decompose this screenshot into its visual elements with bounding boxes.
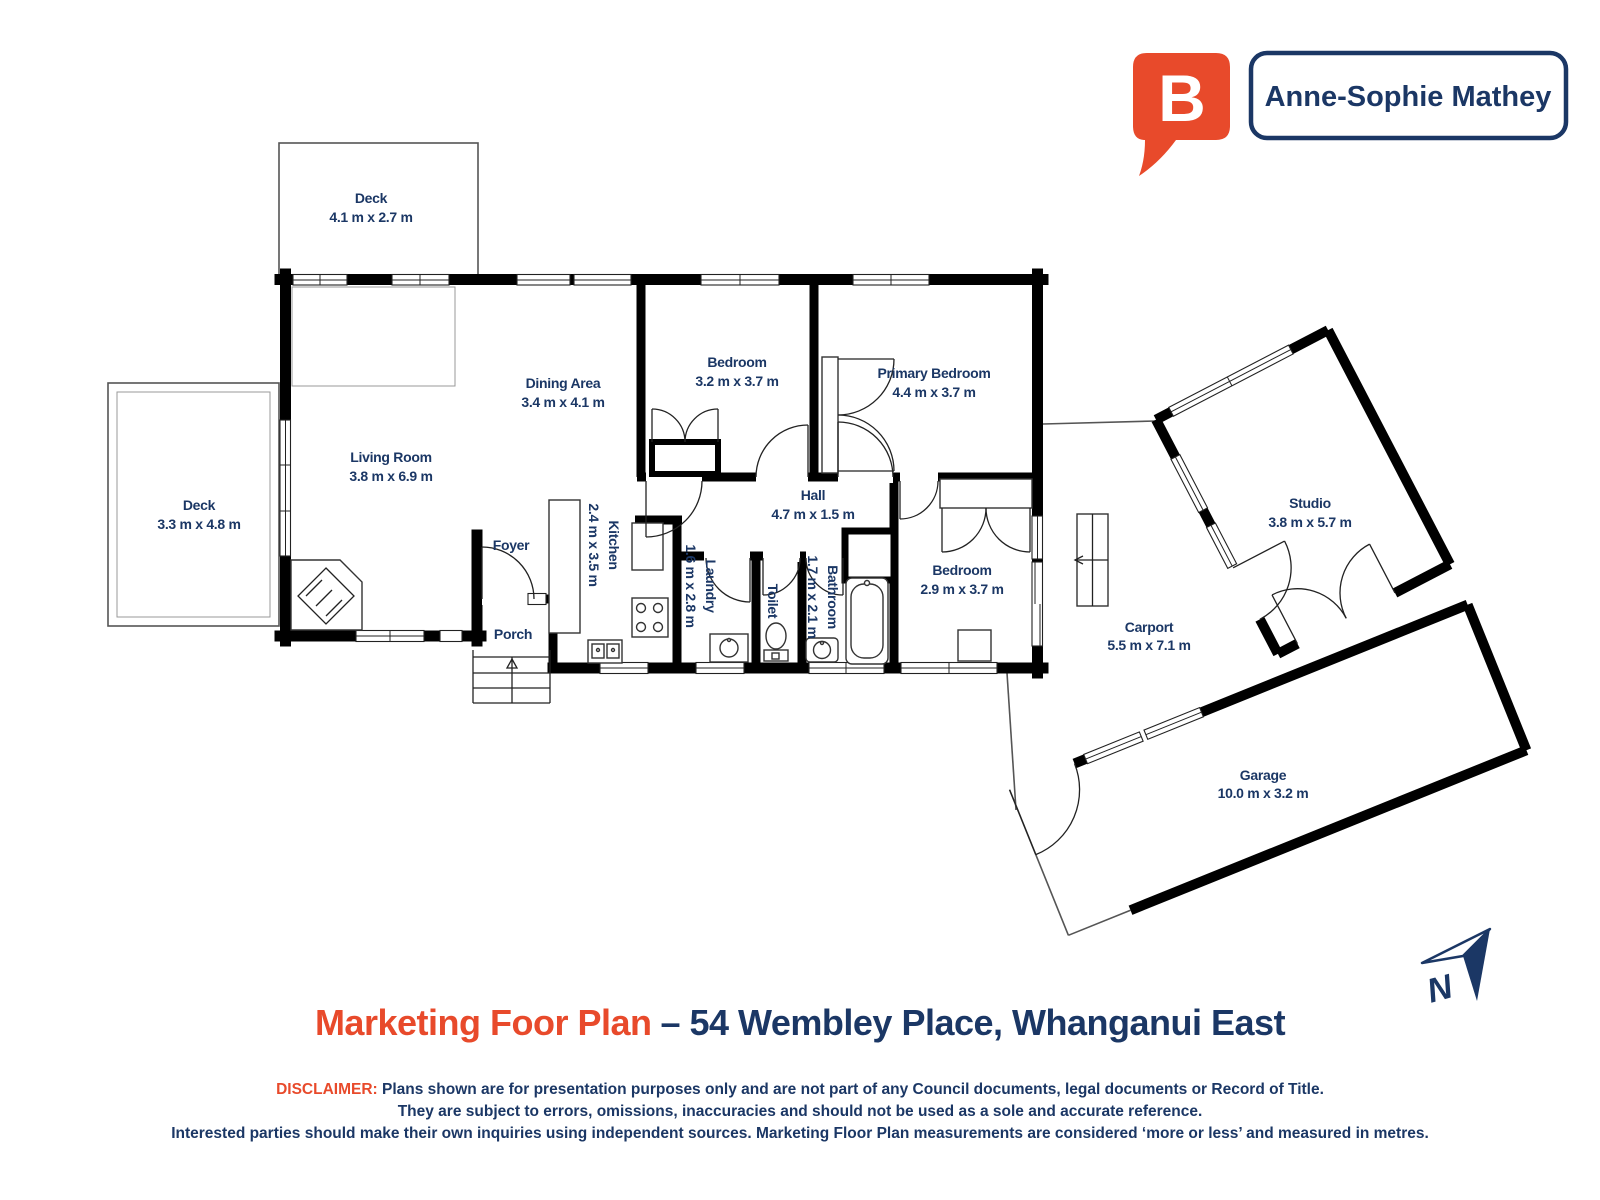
bathroom-sink-icon [806,638,838,662]
primary-closet [822,357,838,473]
disclaimer: DISCLAIMER: Plans shown are for presenta… [0,1079,1600,1145]
svg-text:1.6 m x 2.8 m: 1.6 m x 2.8 m [683,544,699,627]
studio-structure [1149,326,1450,656]
svg-text:10.0 m x 3.2 m: 10.0 m x 3.2 m [1218,785,1309,801]
svg-text:Laundry: Laundry [703,559,719,613]
fireplace-icon [291,560,362,630]
agent-name: Anne-Sophie Mathey [1265,81,1552,113]
kitchen-bench [549,500,580,633]
svg-text:5.5 m x 7.1 m: 5.5 m x 7.1 m [1107,637,1190,653]
plan-title-address: – 54 Wembley Place, Whanganui East [660,1002,1285,1043]
svg-text:3.2 m x 3.7 m: 3.2 m x 3.7 m [695,373,778,389]
label-bedroom-1: Bedroom [707,354,766,370]
svg-text:Toilet: Toilet [765,584,781,619]
label-kitchen: Kitchen 2.4 m x 3.5 m [586,503,622,586]
disclaimer-line-2: They are subject to errors, omissions, i… [0,1101,1600,1123]
svg-text:3.8 m x 6.9 m: 3.8 m x 6.9 m [349,468,432,484]
label-bedroom-2: Bedroom [932,562,991,578]
logo-letter: B [1158,61,1206,135]
porch-steps [473,650,550,703]
label-primary-bedroom: Primary Bedroom [878,365,991,381]
svg-text:Bathroom: Bathroom [825,565,841,629]
stove-icon [632,598,668,637]
label-deck-left: Deck [183,497,216,513]
svg-text:3.8 m x 5.7 m: 3.8 m x 5.7 m [1268,514,1351,530]
label-hall: Hall [801,487,825,503]
svg-text:3.4 m x 4.1 m: 3.4 m x 4.1 m [521,394,604,410]
plan-title-highlight: Marketing Foor Plan [315,1002,652,1043]
svg-text:1.7 m x 2.1 m: 1.7 m x 2.1 m [805,555,821,638]
svg-text:4.1 m x 2.7 m: 4.1 m x 2.7 m [329,209,412,225]
linen-cupboard [845,531,894,580]
label-carport: Carport [1125,619,1174,635]
wardrobe-icon [940,479,1032,552]
svg-text:4.7 m x 1.5 m: 4.7 m x 1.5 m [771,506,854,522]
kitchen-sink-icon [588,640,622,663]
label-bathroom: Bathroom 1.7 m x 2.1 m [805,555,841,638]
label-studio: Studio [1289,495,1331,511]
label-dining-area: Dining Area [526,375,601,391]
toilet-icon [764,623,788,661]
disclaimer-line-3: Interested parties should make their own… [0,1123,1600,1145]
svg-text:Kitchen: Kitchen [606,520,622,569]
bathtub-icon [846,578,888,664]
floor-plan-page: Deck 4.1 m x 2.7 m Deck 3.3 m x 4.8 m Li… [0,0,1600,1200]
label-porch: Porch [494,626,532,642]
svg-text:4.4 m x 3.7 m: 4.4 m x 3.7 m [892,384,975,400]
label-foyer: Foyer [493,537,530,553]
label-living-room: Living Room [350,449,431,465]
label-deck-top: Deck [355,190,388,206]
svg-text:3.3 m x 4.8 m: 3.3 m x 4.8 m [157,516,240,532]
carport-storage [1075,514,1108,606]
north-arrow-icon: N [1422,929,1490,1011]
desk-icon [958,630,991,661]
plan-title: Marketing Foor Plan– 54 Wembley Place, W… [0,1002,1600,1044]
disclaimer-line-1: DISCLAIMER: Plans shown are for presenta… [0,1079,1600,1101]
disclaimer-label: DISCLAIMER: [276,1081,378,1098]
bedroom-closet [652,442,718,474]
brand-logo: B Anne-Sophie Mathey [1133,53,1566,176]
svg-text:2.9 m x 3.7 m: 2.9 m x 3.7 m [920,581,1003,597]
svg-text:2.4 m x 3.5 m: 2.4 m x 3.5 m [586,503,602,586]
label-garage: Garage [1240,767,1287,783]
label-toilet: Toilet [765,584,781,619]
laundry-tub-icon [710,634,748,662]
kitchen-cabinet [632,523,663,570]
